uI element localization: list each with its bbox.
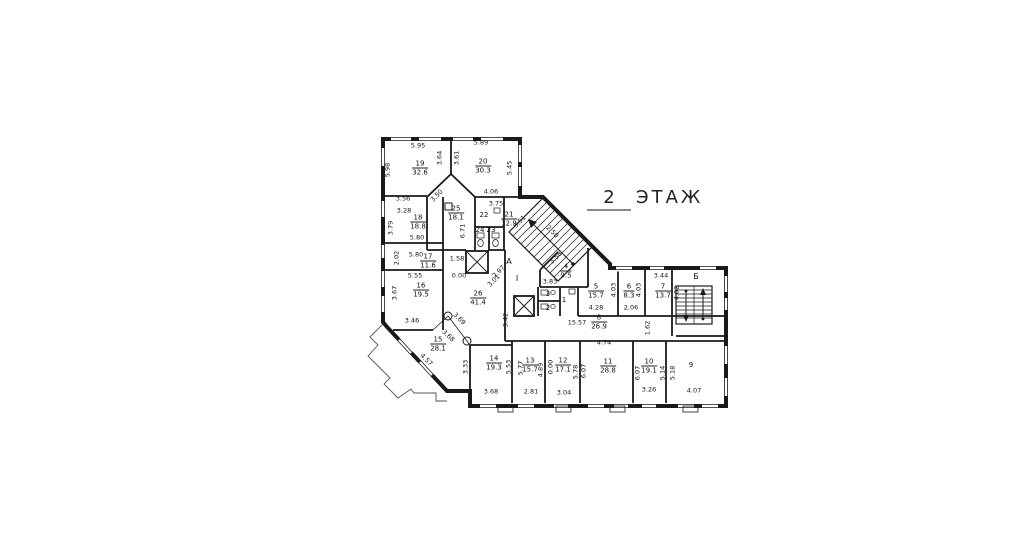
floor-title: 2ЭТАЖ [587,187,703,211]
dimension-label: 3.67 [392,286,399,300]
dimension-label: 4.57 [418,352,433,367]
dimension-label: 6.07 [581,364,588,378]
room-label-3: 3 [545,290,551,298]
dimension-label: 5.78 [573,365,580,379]
dimension-label: 5.77 [518,361,525,375]
dimension-label: 5.80 [409,252,423,259]
dimension-label: 5.14 [660,366,667,380]
dimension-label: 3.46 [405,318,419,325]
dimension-label: 5.98 [385,163,392,177]
floor-number: 2 [587,187,631,211]
dimension-label: 3.56 [396,196,410,203]
room-label-26: 2641.4 [470,290,486,307]
room-label-23: 23 [486,226,497,234]
labels-layer: 1932.62030.31818.82518.1222112.924231711… [0,0,1023,541]
dimension-label: 3.64 [437,151,444,165]
dimension-label: 5.89 [474,140,488,147]
dimension-label: 2.06 [624,305,638,312]
dimension-label: 4.03 [636,283,643,297]
dimension-label: 3.28 [397,208,411,215]
dimension-label: 3.26 [642,387,656,394]
dimension-label: 3.83 [543,279,557,286]
dimension-label: 4.06 [484,189,498,196]
dimension-label: 5.45 [507,161,514,175]
dimension-label: 3.01 [486,273,501,288]
room-label-12: 1217.1 [555,357,571,374]
room-label-16: 1619.5 [413,282,429,299]
dimension-label: 5.53 [506,360,513,374]
room-label-25: 2518.1 [448,205,464,222]
dimension-label: 3.44 [654,273,668,280]
stair-marker-I: I [516,275,518,283]
dimension-label: 3.04 [557,390,571,397]
dimension-label: 6.71 [460,224,467,238]
dimension-label: 3.75 [489,201,503,208]
dimension-label: 4.89 [538,363,545,377]
room-label-2: 2 [545,304,551,312]
dimension-label: 1.62 [645,321,652,335]
room-label-18: 1818.8 [410,214,426,231]
room-label-7: 713.7 [655,283,671,300]
room-label-4: 49.5 [560,263,571,280]
dimension-label: 4.03 [611,283,618,297]
dimension-label: 0.00 [452,273,466,280]
dimension-label: 2.02 [394,251,401,265]
stair-marker-Б: Б [693,273,699,281]
dimension-label: 4.74 [597,340,611,347]
room-label-9: 9 [688,361,694,369]
dimension-label: 3.68 [484,389,498,396]
dimension-label: 4.28 [589,305,603,312]
room-label-19: 1932.6 [412,160,428,177]
floor-plan-page: 1932.62030.31818.82518.1222112.924231711… [0,0,1023,541]
dimension-label: 15.57 [568,320,587,327]
dimension-label: 3.69 [451,311,466,326]
dimension-label: 2.81 [524,389,538,396]
dimension-label: 1.58 [450,256,464,263]
dimension-label: 2.50 [544,224,559,239]
dimension-label: 5.18 [670,366,677,380]
room-label-22: 22 [479,211,490,219]
dimension-label: 4.02 [674,286,681,300]
floor-title-word: ЭТАЖ [636,187,703,208]
dimension-label: 3.50 [429,188,444,203]
dimension-label: 0.00 [548,360,555,374]
dimension-label: 3.33 [463,360,470,374]
dimension-label: 3.79 [388,221,395,235]
room-label-15: 1528.1 [430,336,446,353]
dimension-label: 4.07 [687,388,701,395]
dimension-label: 6.07 [635,366,642,380]
room-label-1: 1 [561,296,567,304]
room-label-24: 24 [475,226,486,234]
dimension-label: 5.55 [408,273,422,280]
room-label-5: 515.7 [588,283,604,300]
room-label-10: 1019.1 [641,358,657,375]
dimension-label: 5.95 [411,143,425,150]
room-label-20: 2030.3 [475,158,491,175]
room-label-14: 1419.3 [486,355,502,372]
stair-marker-А: А [506,258,511,266]
room-label-11: 1128.8 [600,358,616,375]
room-label-13: 1315.7 [522,357,538,374]
dimension-label: 3.61 [454,151,461,165]
room-label-8: 826.9 [591,314,607,331]
dimension-label: 5.80 [410,235,424,242]
dimension-label: 3.42 [503,313,510,327]
room-label-6: 68.3 [623,283,634,300]
